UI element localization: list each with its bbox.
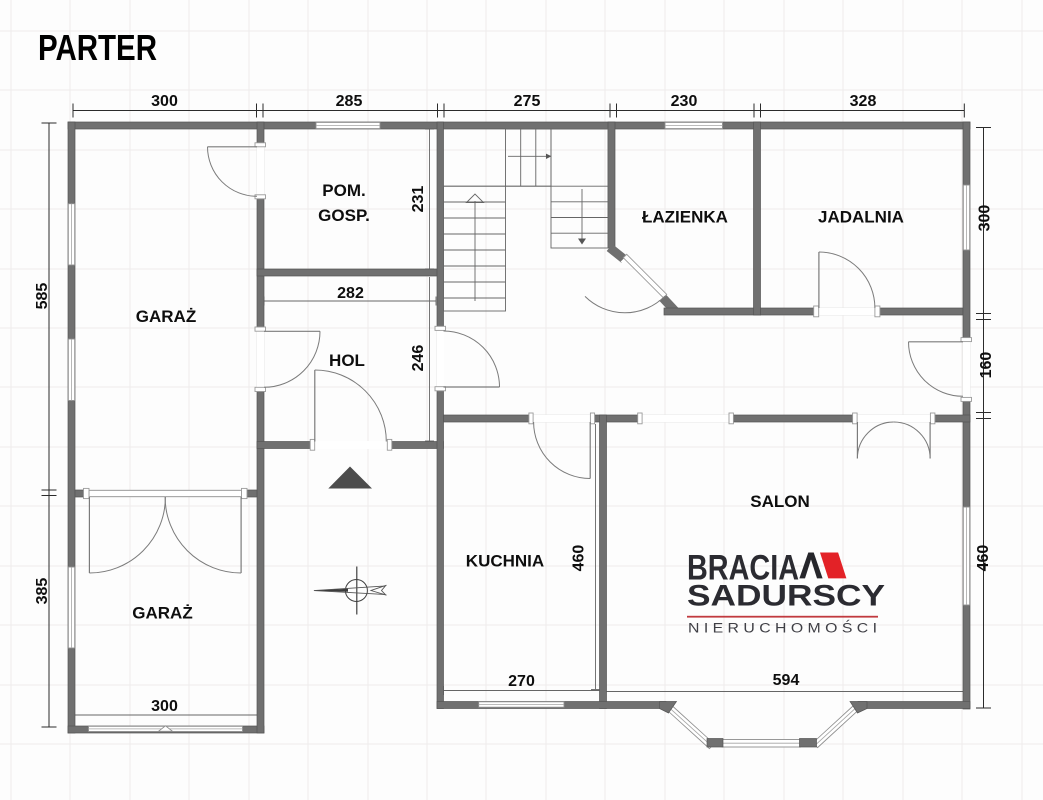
- svg-text:ŁAZIENKA: ŁAZIENKA: [642, 208, 728, 227]
- svg-text:300: 300: [977, 205, 994, 232]
- svg-text:585: 585: [34, 283, 51, 310]
- svg-text:N I E R U C H O M O Ś C I: N I E R U C H O M O Ś C I: [688, 621, 877, 636]
- svg-text:KUCHNIA: KUCHNIA: [466, 552, 544, 571]
- svg-text:GARAŻ: GARAŻ: [136, 307, 196, 326]
- svg-text:POM.: POM.: [322, 181, 365, 200]
- svg-text:PARTER: PARTER: [38, 27, 157, 68]
- svg-text:300: 300: [151, 93, 178, 110]
- svg-text:385: 385: [34, 578, 51, 605]
- svg-text:160: 160: [978, 352, 995, 379]
- svg-text:460: 460: [571, 545, 588, 572]
- svg-text:594: 594: [773, 672, 800, 689]
- svg-text:JADALNIA: JADALNIA: [818, 208, 904, 227]
- svg-text:275: 275: [514, 93, 541, 110]
- svg-text:230: 230: [671, 93, 698, 110]
- svg-text:270: 270: [508, 673, 535, 690]
- svg-text:285: 285: [336, 93, 363, 110]
- svg-text:328: 328: [850, 93, 877, 110]
- svg-text:SADURSCY: SADURSCY: [687, 580, 885, 613]
- svg-text:246: 246: [410, 345, 427, 372]
- svg-text:460: 460: [975, 545, 992, 572]
- svg-text:HOL: HOL: [329, 351, 365, 370]
- svg-text:282: 282: [337, 285, 364, 302]
- svg-text:231: 231: [410, 186, 427, 213]
- svg-text:SALON: SALON: [750, 492, 810, 511]
- svg-text:GARAŻ: GARAŻ: [132, 604, 192, 623]
- svg-text:GOSP.: GOSP.: [318, 206, 370, 225]
- svg-text:300: 300: [151, 698, 178, 715]
